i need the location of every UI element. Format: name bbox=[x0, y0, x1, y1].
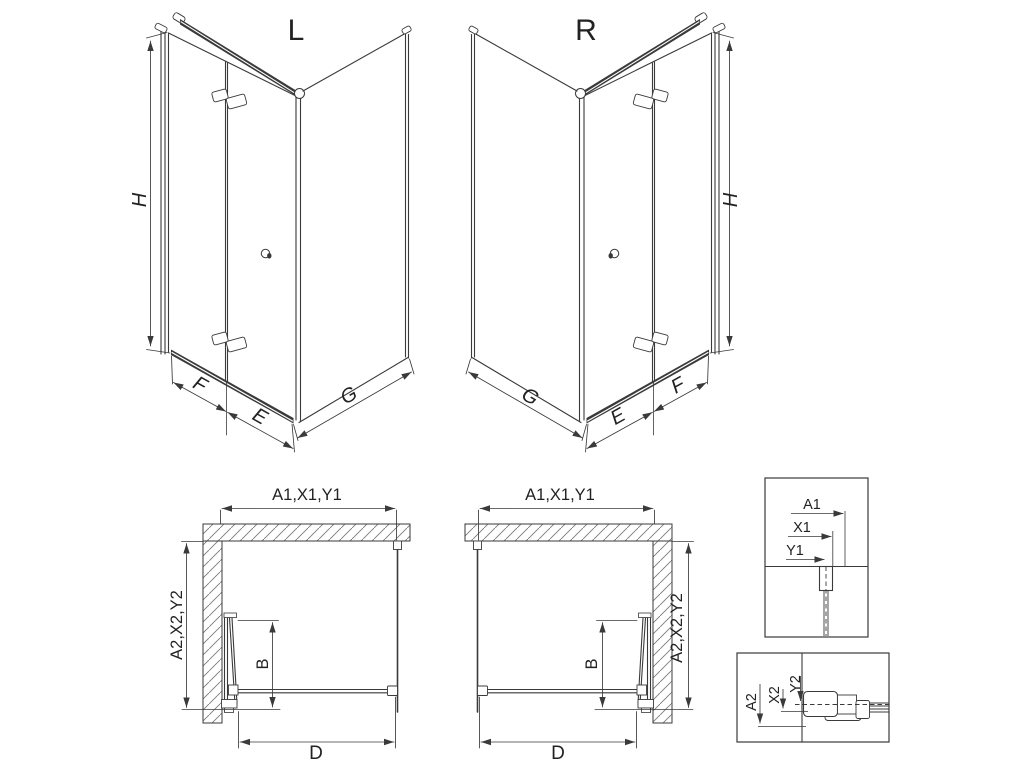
plan-left-dim-door-depth: B bbox=[254, 658, 272, 669]
detail-bottom-dim-y: Y2 bbox=[788, 675, 804, 693]
plan-right-dim-clear-width: D bbox=[551, 743, 565, 764]
shower-enclosure-drawing: L H F E G R H G E F A1,X1,Y1 A2,X2,Y2 B … bbox=[0, 0, 1024, 768]
detail-bottom-dim-a: A2 bbox=[744, 693, 760, 711]
plan-view-right: A1,X1,Y1 A2,X2,Y2 B D bbox=[465, 486, 694, 764]
iso-view-right: R H G E F bbox=[466, 12, 742, 452]
iso-left-dim-side: G bbox=[337, 382, 361, 409]
iso-left-dim-front-fixed: F bbox=[189, 372, 212, 398]
iso-right-dim-front-door: E bbox=[607, 404, 630, 430]
iso-right-dim-height: H bbox=[720, 192, 742, 207]
plan-right-wall-top bbox=[465, 524, 672, 541]
plan-right-dim-door-depth: B bbox=[583, 658, 601, 669]
plan-view-left: A1,X1,Y1 A2,X2,Y2 B D bbox=[168, 486, 410, 764]
technical-drawing-page: L H F E G R H G E F A1,X1,Y1 A2,X2,Y2 B … bbox=[0, 0, 1024, 768]
plan-right-dim-top: A1,X1,Y1 bbox=[525, 486, 595, 504]
detail-top-dim-y: Y1 bbox=[786, 543, 804, 559]
iso-right-dim-front-fixed: F bbox=[667, 372, 690, 398]
plan-left-dim-clear-width: D bbox=[309, 743, 323, 764]
plan-right-dim-side: A2,X2,Y2 bbox=[668, 593, 686, 663]
iso-left-dim-height: H bbox=[129, 192, 151, 207]
iso-right-title: R bbox=[575, 14, 597, 47]
plan-left-dim-top: A1,X1,Y1 bbox=[272, 486, 342, 504]
detail-top-dim-x: X1 bbox=[793, 520, 811, 536]
top-profile-detail-view: A1 X1 Y1 bbox=[765, 478, 868, 637]
iso-left-title: L bbox=[288, 14, 305, 47]
plan-left-wall-top bbox=[203, 524, 410, 541]
iso-right-geometry bbox=[466, 12, 734, 452]
plan-left-dim-side: A2,X2,Y2 bbox=[168, 590, 186, 660]
iso-view-left: L H F E G bbox=[129, 12, 414, 452]
detail-bottom-dim-x: X2 bbox=[767, 686, 783, 704]
plan-left-wall-side bbox=[203, 541, 222, 723]
bottom-profile-detail-view: A2 X2 Y2 bbox=[737, 653, 889, 742]
detail-top-dim-a: A1 bbox=[803, 497, 821, 513]
iso-left-geometry bbox=[147, 12, 415, 452]
